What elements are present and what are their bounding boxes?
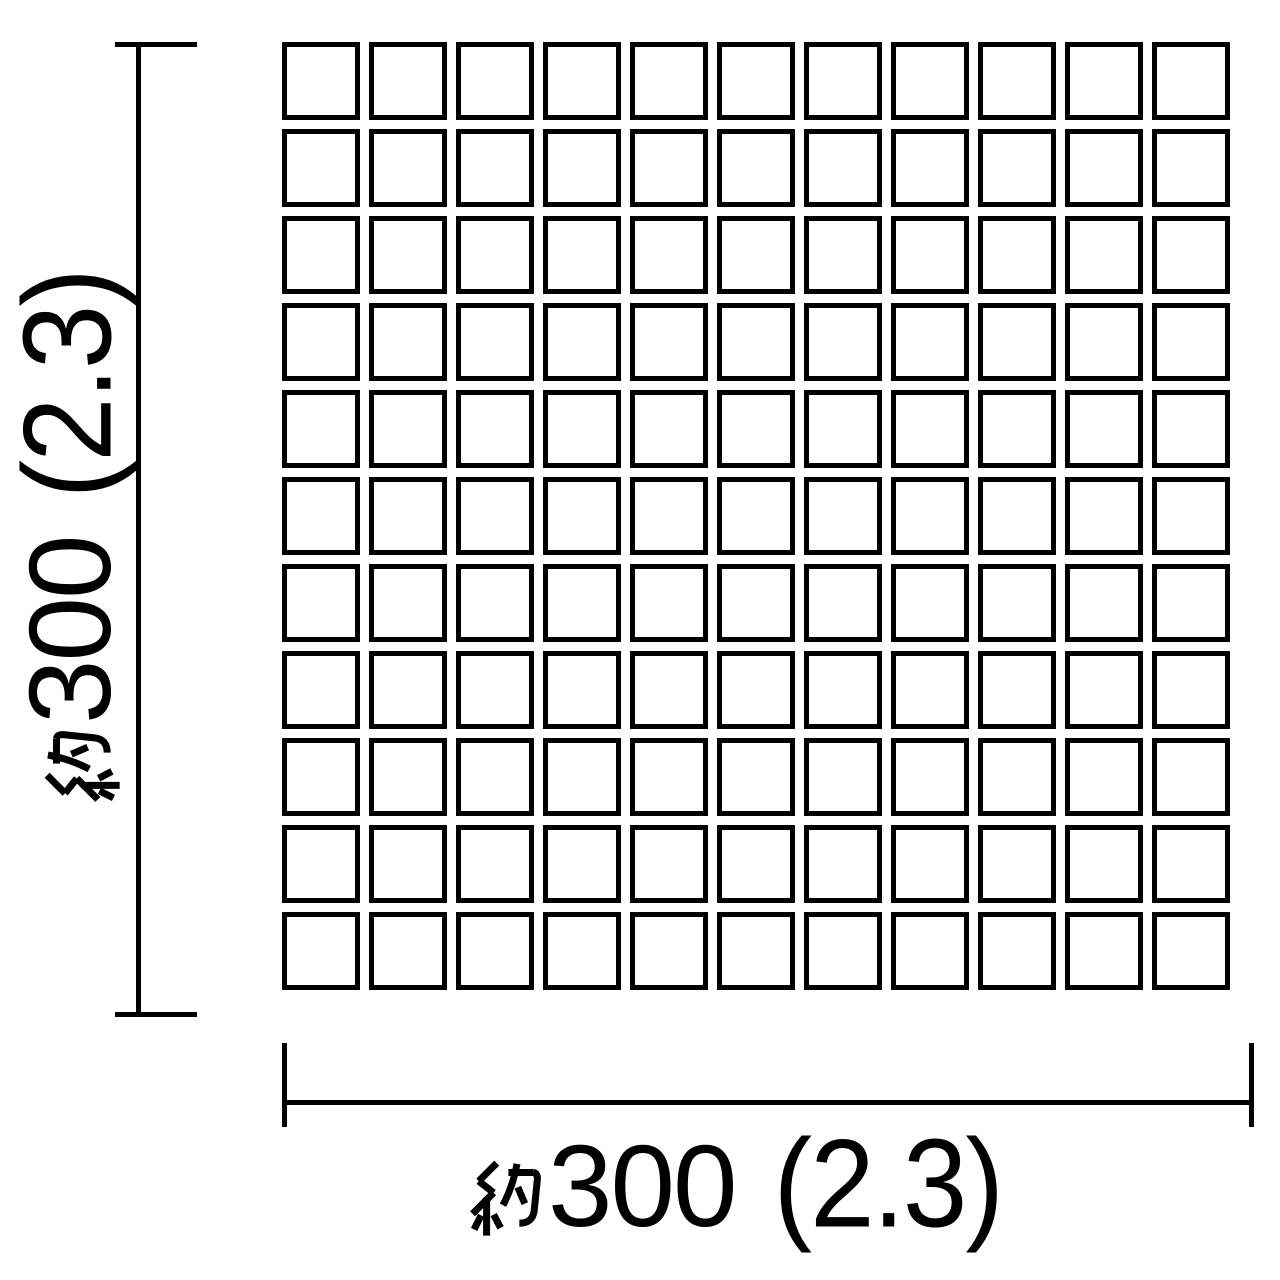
- tile: [543, 129, 621, 207]
- tile: [1152, 738, 1230, 816]
- tile: [1065, 216, 1143, 294]
- tile: [717, 912, 795, 990]
- tile: [369, 129, 447, 207]
- tile: [282, 738, 360, 816]
- tile: [630, 738, 708, 816]
- tile: [978, 129, 1056, 207]
- horizontal-dimension-left-tick: [282, 1043, 287, 1127]
- tile-sheet-dimension-diagram: 300 (2.3) 300 (2.3): [0, 0, 1280, 1280]
- horizontal-dimension-line: [284, 1100, 1253, 1105]
- tile: [717, 129, 795, 207]
- tile: [369, 651, 447, 729]
- tile: [1152, 303, 1230, 381]
- tile: [369, 564, 447, 642]
- tile: [717, 42, 795, 120]
- tile: [456, 42, 534, 120]
- tile: [282, 912, 360, 990]
- tile: [630, 477, 708, 555]
- tile: [1152, 390, 1230, 468]
- tile: [1065, 477, 1143, 555]
- horizontal-dimension-value: 300: [548, 1128, 736, 1244]
- tile: [456, 912, 534, 990]
- tile: [978, 390, 1056, 468]
- tile: [804, 477, 882, 555]
- vertical-dimension-paren: (2.3): [5, 270, 130, 499]
- tile: [1065, 825, 1143, 903]
- tile: [804, 738, 882, 816]
- tile: [717, 738, 795, 816]
- tile: [369, 738, 447, 816]
- vertical-dimension-line: [136, 42, 141, 1017]
- horizontal-dimension-label: 300 (2.3): [464, 1128, 1002, 1244]
- tile: [369, 477, 447, 555]
- tile: [282, 564, 360, 642]
- tile: [282, 42, 360, 120]
- tile: [978, 912, 1056, 990]
- tile: [1065, 129, 1143, 207]
- kanji-yaku-glyph: [464, 1148, 542, 1250]
- vertical-dimension-value: 300: [12, 536, 128, 724]
- tile: [543, 651, 621, 729]
- tile: [717, 477, 795, 555]
- tile: [369, 303, 447, 381]
- tile: [891, 912, 969, 990]
- tile: [1065, 42, 1143, 120]
- tile: [978, 651, 1056, 729]
- tile: [717, 825, 795, 903]
- tile: [369, 390, 447, 468]
- tile: [717, 303, 795, 381]
- tile: [891, 825, 969, 903]
- tile: [543, 42, 621, 120]
- tile: [630, 216, 708, 294]
- tile: [1152, 825, 1230, 903]
- tile: [1152, 42, 1230, 120]
- tile: [282, 390, 360, 468]
- tile: [891, 564, 969, 642]
- tile: [1152, 651, 1230, 729]
- tile: [456, 477, 534, 555]
- tile: [543, 912, 621, 990]
- tile: [717, 216, 795, 294]
- tile: [456, 390, 534, 468]
- tile: [891, 738, 969, 816]
- tile: [630, 912, 708, 990]
- tile: [543, 216, 621, 294]
- tile: [1065, 564, 1143, 642]
- tile: [717, 651, 795, 729]
- tile: [369, 912, 447, 990]
- tile: [1065, 651, 1143, 729]
- tile: [456, 129, 534, 207]
- tile: [630, 651, 708, 729]
- tile: [369, 825, 447, 903]
- tile: [369, 216, 447, 294]
- tile: [282, 129, 360, 207]
- tile: [978, 303, 1056, 381]
- mosaic-tile-grid: [282, 42, 1230, 990]
- tile: [630, 129, 708, 207]
- tile: [891, 651, 969, 729]
- tile: [891, 42, 969, 120]
- tile: [1152, 912, 1230, 990]
- tile: [804, 216, 882, 294]
- tile: [804, 42, 882, 120]
- tile: [543, 303, 621, 381]
- tile: [1152, 477, 1230, 555]
- tile: [1152, 564, 1230, 642]
- tile: [1065, 303, 1143, 381]
- tile: [282, 825, 360, 903]
- vertical-dimension-top-tick: [115, 42, 197, 47]
- tile: [282, 477, 360, 555]
- tile: [717, 564, 795, 642]
- tile: [1152, 216, 1230, 294]
- tile: [1065, 912, 1143, 990]
- tile: [891, 216, 969, 294]
- tile: [456, 738, 534, 816]
- tile: [630, 564, 708, 642]
- tile: [804, 825, 882, 903]
- tile: [978, 825, 1056, 903]
- tile: [543, 738, 621, 816]
- tile: [717, 390, 795, 468]
- tile: [1065, 738, 1143, 816]
- tile: [978, 738, 1056, 816]
- tile: [369, 42, 447, 120]
- tile: [630, 825, 708, 903]
- tile: [630, 42, 708, 120]
- tile: [891, 477, 969, 555]
- tile: [978, 477, 1056, 555]
- horizontal-dimension-right-tick: [1249, 1043, 1254, 1127]
- tile: [891, 303, 969, 381]
- vertical-dimension-bottom-tick: [115, 1012, 197, 1017]
- tile: [543, 390, 621, 468]
- tile: [804, 912, 882, 990]
- tile: [978, 216, 1056, 294]
- horizontal-dimension-paren: (2.3): [774, 1121, 1003, 1246]
- tile: [978, 564, 1056, 642]
- tile: [456, 303, 534, 381]
- tile: [543, 477, 621, 555]
- tile: [978, 42, 1056, 120]
- tile: [891, 390, 969, 468]
- tile: [543, 825, 621, 903]
- kanji-yaku-glyph: [32, 730, 134, 808]
- tile: [282, 216, 360, 294]
- tile: [456, 825, 534, 903]
- tile: [891, 129, 969, 207]
- tile: [804, 564, 882, 642]
- tile: [630, 390, 708, 468]
- tile: [1065, 390, 1143, 468]
- tile: [456, 216, 534, 294]
- tile: [804, 390, 882, 468]
- tile: [804, 303, 882, 381]
- tile: [282, 651, 360, 729]
- tile: [456, 564, 534, 642]
- tile: [456, 651, 534, 729]
- tile: [1152, 129, 1230, 207]
- tile: [282, 303, 360, 381]
- vertical-dimension-label: 300 (2.3): [12, 270, 128, 808]
- tile: [804, 651, 882, 729]
- tile: [630, 303, 708, 381]
- tile: [804, 129, 882, 207]
- tile: [543, 564, 621, 642]
